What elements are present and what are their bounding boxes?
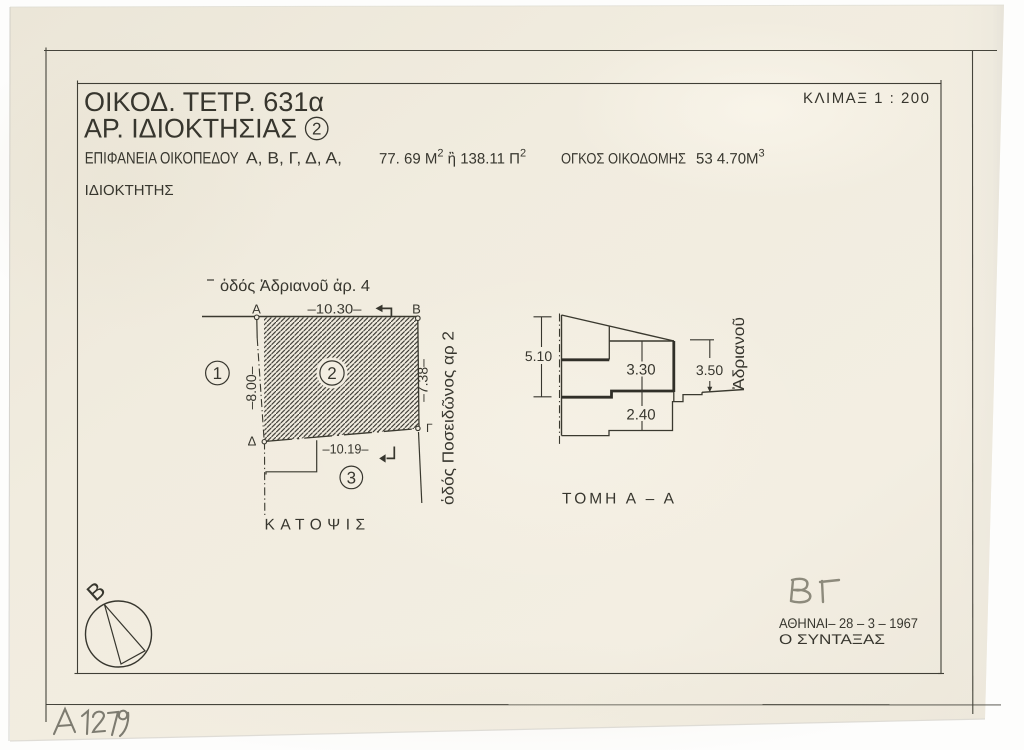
svg-text:5.10: 5.10 [525, 348, 552, 364]
svg-text:ΑΘΗΝΑΙ– 28 – 3 – 1967: ΑΘΗΝΑΙ– 28 – 3 – 1967 [779, 615, 918, 631]
svg-text:3.30: 3.30 [626, 362, 655, 379]
svg-text:ΚΑΤΟΨΙΣ: ΚΑΤΟΨΙΣ [265, 517, 371, 534]
svg-text:ΕΠΙΦΑΝΕΙΑ ΟΙΚΟΠΕΔΟΥ: ΕΠΙΦΑΝΕΙΑ ΟΙΚΟΠΕΔΟΥ [85, 150, 239, 168]
svg-text:–7.38–: –7.38– [415, 359, 431, 402]
svg-text:–8.00–: –8.00– [243, 366, 259, 409]
svg-text:Δ: Δ [248, 434, 257, 449]
svg-text:Β: Β [412, 302, 421, 317]
svg-text:Ἀδριανοῦ: Ἀδριανοῦ [731, 317, 748, 390]
svg-text:1: 1 [213, 364, 222, 383]
svg-text:ΤΟΜΗ Α – Α: ΤΟΜΗ Α – Α [562, 491, 677, 508]
svg-text:–10.19–: –10.19– [323, 442, 369, 457]
svg-text:ΑΡ. ΙΔΙΟΚΤΗΣΙΑΣ: ΑΡ. ΙΔΙΟΚΤΗΣΙΑΣ [84, 114, 297, 144]
svg-text:ΚΛΙΜΑΞ 1 : 200: ΚΛΙΜΑΞ 1 : 200 [803, 90, 930, 107]
svg-text:–10.30–: –10.30– [308, 302, 363, 317]
svg-text:ὁδός Ποσειδῶνος αρ 2: ὁδός Ποσειδῶνος αρ 2 [441, 331, 458, 505]
svg-text:3.50: 3.50 [696, 362, 723, 378]
svg-text:2: 2 [312, 120, 321, 139]
svg-text:53 4.70Μ3: 53 4.70Μ3 [696, 148, 765, 168]
svg-text:Α: Α [252, 302, 261, 317]
svg-text:Γ: Γ [426, 421, 433, 435]
svg-text:3: 3 [347, 468, 356, 487]
svg-text:2: 2 [327, 364, 336, 383]
svg-text:77. 69 Μ2 ἢ 138.11 Π2: 77. 69 Μ2 ἢ 138.11 Π2 [379, 148, 526, 168]
svg-text:2.40: 2.40 [626, 407, 655, 424]
svg-text:ΙΔΙΟΚΤΗΤΗΣ: ΙΔΙΟΚΤΗΤΗΣ [85, 183, 174, 199]
svg-text:Α, Β, Γ, Δ, Α,: Α, Β, Γ, Δ, Α, [246, 150, 342, 168]
svg-text:Ο ΣΥΝΤΑΞΑΣ: Ο ΣΥΝΤΑΞΑΣ [779, 631, 885, 647]
svg-text:ὁδός Ἀδριανοῦ ἀρ. 4: ὁδός Ἀδριανοῦ ἀρ. 4 [220, 278, 370, 295]
svg-text:ΟΓΚΟΣ ΟΙΚΟΔΟΜΗΣ: ΟΓΚΟΣ ΟΙΚΟΔΟΜΗΣ [561, 151, 686, 168]
svg-text:ΟΙΚΟΔ. ΤΕΤΡ. 631α: ΟΙΚΟΔ. ΤΕΤΡ. 631α [84, 87, 324, 117]
